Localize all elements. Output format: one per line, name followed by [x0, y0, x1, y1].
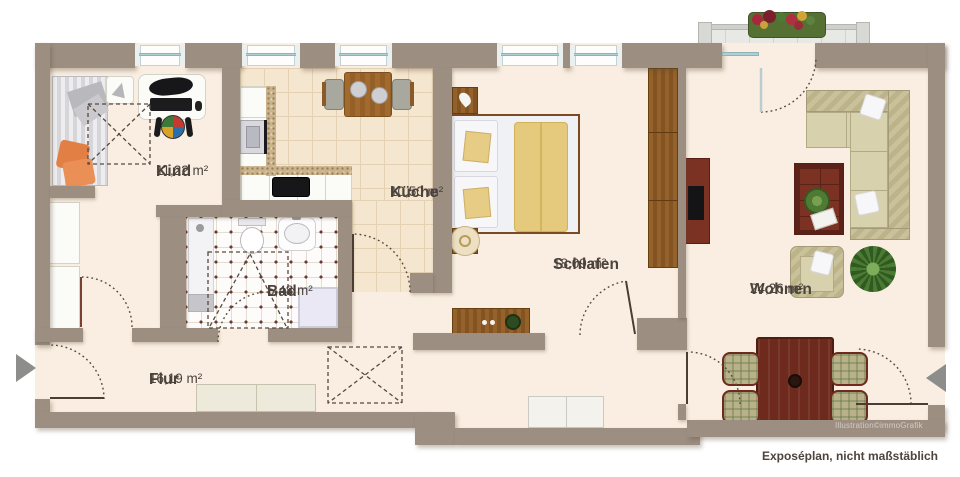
toilet-tank	[238, 218, 266, 226]
stove-top	[246, 126, 260, 148]
flower-icon	[760, 21, 768, 29]
wardrobe-shelf-line	[648, 200, 678, 201]
counter-edge	[266, 86, 276, 176]
stove-edge	[264, 120, 267, 154]
shower-base	[188, 294, 214, 312]
window	[497, 45, 563, 66]
wall-kind-kitchen	[222, 68, 240, 200]
wall-kitchen-bath	[222, 200, 352, 217]
wall-bath-bottom	[35, 328, 83, 342]
room-area: 24,26 m²	[750, 281, 803, 297]
room-area: 5,48 m²	[267, 283, 313, 299]
watermark: Illustration©immoGrafik	[835, 421, 923, 430]
counter-edge	[240, 166, 352, 175]
flower-icon	[794, 21, 803, 30]
wall-left	[35, 43, 50, 345]
kitchen-sink	[272, 177, 310, 197]
kind-pillow-orange	[62, 158, 96, 189]
wall-bottom-step	[415, 412, 455, 445]
flower-icon	[776, 12, 786, 22]
dining-table-knob	[788, 374, 802, 388]
kitchen-chair-back	[410, 82, 414, 106]
wall-bath-right	[338, 217, 352, 328]
window	[135, 45, 185, 66]
palm-plant-icon	[850, 246, 896, 292]
room-area: 16,19 m²	[149, 371, 202, 387]
wall-top	[563, 43, 570, 68]
tv-icon	[688, 186, 704, 220]
washbasin-bowl	[284, 223, 310, 244]
entrance-arrow-left	[16, 354, 36, 382]
balcony-window-glass	[722, 52, 759, 56]
sofa-armrest	[850, 228, 910, 240]
hall-closet	[46, 202, 80, 264]
dining-chair	[722, 390, 760, 424]
dresser-knob	[482, 320, 487, 325]
caption: Exposéplan, nicht maßstäblich	[762, 449, 938, 463]
wall-left	[35, 399, 50, 412]
bed-cushion	[463, 187, 492, 219]
wall-right	[928, 43, 945, 347]
dresser-knob	[490, 320, 495, 325]
wall-corner	[410, 273, 433, 293]
room-area: 18,09 m²	[553, 256, 606, 272]
plate-icon	[371, 87, 388, 104]
plate-icon	[350, 81, 367, 98]
window-glass	[574, 53, 618, 56]
window	[570, 45, 622, 66]
sofa-pillow	[854, 190, 880, 216]
window-glass	[339, 53, 388, 56]
sideboard	[528, 396, 604, 428]
window-glass	[246, 53, 296, 56]
window	[242, 45, 300, 66]
kitchen-chair	[392, 79, 412, 110]
bed-blanket	[514, 122, 568, 232]
wall-kind-bottom	[50, 186, 95, 198]
shower-head-icon	[196, 224, 204, 232]
wardrobe	[648, 68, 678, 268]
dining-chair	[722, 352, 760, 386]
wall-bedroom-living	[678, 68, 686, 318]
wall-top	[185, 43, 242, 68]
desk-chair-seat	[161, 115, 185, 139]
toilet	[240, 227, 264, 254]
wall-kitchen-bedroom	[433, 68, 452, 293]
window-glass	[139, 53, 181, 56]
window	[335, 45, 392, 66]
bedside-table-ring	[459, 235, 471, 247]
wall-corner	[637, 318, 687, 350]
wall-bottom	[35, 412, 430, 428]
mouse-icon	[195, 101, 202, 111]
sideboard	[196, 384, 316, 412]
window-glass	[501, 53, 559, 56]
wardrobe-shelf-line	[648, 132, 678, 133]
kitchen-chair-back	[322, 82, 326, 106]
wall-bottom	[455, 428, 700, 445]
bed-cushion	[463, 131, 492, 164]
wall-bath-left	[160, 217, 186, 328]
dining-chair	[830, 352, 868, 386]
wall-top	[35, 43, 135, 68]
room-area: 10,50 m²	[390, 184, 443, 200]
wall-stub	[678, 404, 686, 420]
keyboard-icon	[150, 98, 192, 111]
wall-top	[300, 43, 335, 68]
wall-bath-bottom	[132, 328, 218, 342]
floor-plan: Kind 11,22 m² Küche 10,50 m² Bad 5,48 m²…	[0, 0, 960, 477]
corner-sofa-back-right	[888, 90, 910, 240]
wall-bedroom-bottom	[413, 333, 545, 350]
hall-closet	[46, 266, 80, 330]
wall-top	[622, 43, 722, 68]
wall-top	[815, 43, 945, 68]
wall-bath-bottom	[268, 328, 352, 342]
wall-top	[392, 43, 497, 68]
dresser-bowl	[505, 314, 521, 330]
wall-kind-bottom	[156, 205, 222, 217]
flower-icon	[806, 16, 815, 25]
dining-chair	[830, 390, 868, 424]
room-area: 11,22 m²	[156, 163, 208, 179]
kitchen-chair	[324, 79, 344, 110]
